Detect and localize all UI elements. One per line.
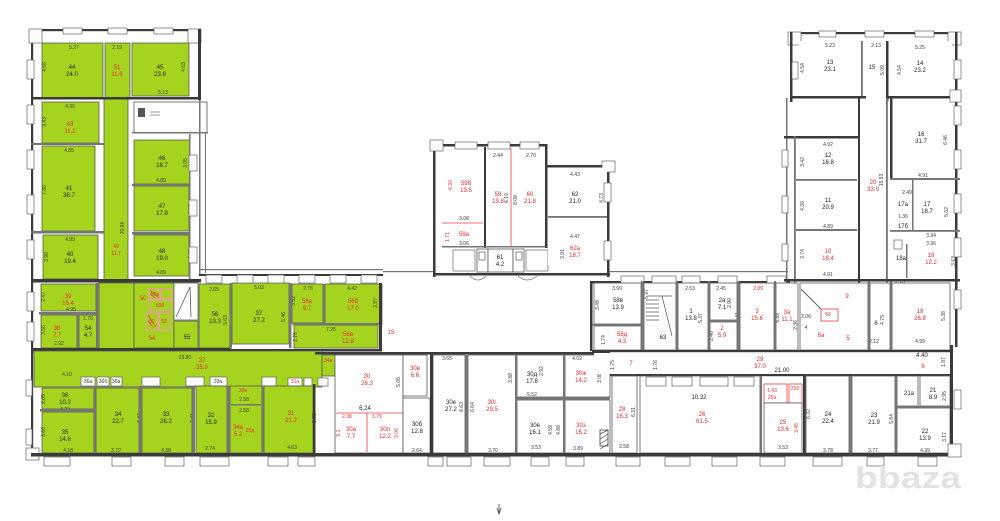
svg-text:20.88: 20.88 — [120, 222, 126, 235]
svg-text:2a: 2a — [719, 298, 726, 304]
svg-text:10: 10 — [825, 249, 832, 255]
svg-text:44: 44 — [69, 65, 76, 71]
svg-text:7.7: 7.7 — [53, 333, 62, 339]
svg-text:30e: 30e — [446, 400, 457, 406]
svg-text:18.7: 18.7 — [156, 163, 168, 169]
svg-text:7.1: 7.1 — [718, 305, 727, 311]
svg-text:9.7: 9.7 — [303, 306, 312, 312]
svg-text:4.89: 4.89 — [156, 178, 166, 184]
svg-text:5.02: 5.02 — [944, 207, 950, 217]
svg-text:6.10: 6.10 — [504, 193, 510, 203]
svg-text:25б: 25б — [791, 386, 800, 392]
svg-text:29.5: 29.5 — [486, 407, 498, 413]
svg-text:12.2: 12.2 — [379, 434, 391, 440]
svg-text:49: 49 — [113, 244, 119, 250]
svg-text:26.2: 26.2 — [160, 419, 172, 425]
svg-text:11.1: 11.1 — [781, 317, 793, 323]
svg-text:1.76: 1.76 — [653, 360, 659, 370]
svg-text:37: 37 — [256, 311, 263, 317]
svg-text:18.4: 18.4 — [822, 256, 834, 262]
svg-text:8.08: 8.08 — [513, 195, 519, 205]
svg-text:16: 16 — [918, 132, 925, 138]
svg-text:6.46: 6.46 — [943, 135, 949, 145]
svg-text:30и: 30и — [239, 388, 248, 394]
svg-text:19.4: 19.4 — [64, 259, 76, 265]
svg-text:2.58: 2.58 — [239, 408, 249, 414]
svg-text:3a: 3a — [784, 310, 791, 316]
svg-text:3.08: 3.08 — [597, 373, 603, 383]
svg-text:25д: 25д — [246, 428, 255, 434]
svg-text:55: 55 — [184, 335, 191, 341]
svg-text:15: 15 — [869, 65, 876, 71]
svg-text:31: 31 — [288, 411, 295, 417]
svg-text:22: 22 — [922, 429, 929, 435]
svg-text:30б: 30б — [412, 422, 423, 428]
svg-text:21.00: 21.00 — [774, 368, 790, 374]
svg-text:4.59: 4.59 — [548, 425, 554, 435]
svg-text:60: 60 — [527, 192, 534, 198]
svg-text:2.92: 2.92 — [54, 341, 64, 347]
svg-text:2.05: 2.05 — [41, 394, 47, 404]
svg-text:38: 38 — [54, 326, 61, 332]
svg-text:1.76: 1.76 — [83, 316, 93, 322]
svg-text:3.42: 3.42 — [800, 157, 806, 167]
svg-text:37.0: 37.0 — [754, 364, 766, 370]
svg-text:4.88: 4.88 — [556, 425, 562, 435]
svg-text:36: 36 — [62, 393, 69, 399]
svg-text:62: 62 — [572, 192, 579, 198]
svg-text:3.52: 3.52 — [291, 296, 297, 306]
svg-text:30в: 30в — [410, 366, 420, 372]
svg-text:18.7: 18.7 — [569, 253, 581, 259]
svg-text:56: 56 — [825, 312, 831, 318]
svg-text:4.02: 4.02 — [572, 356, 582, 362]
svg-text:5.38: 5.38 — [941, 311, 947, 321]
svg-text:2.36: 2.36 — [793, 320, 799, 330]
svg-text:39: 39 — [65, 294, 72, 300]
svg-text:56в: 56в — [343, 332, 353, 338]
svg-text:5.27: 5.27 — [69, 45, 79, 51]
svg-text:5.63: 5.63 — [223, 315, 229, 325]
svg-text:18: 18 — [928, 253, 935, 259]
svg-text:1.36: 1.36 — [898, 214, 908, 220]
svg-text:13.6: 13.6 — [777, 427, 789, 433]
svg-text:3.65: 3.65 — [442, 356, 452, 362]
svg-text:59: 59 — [495, 192, 502, 198]
svg-text:50a: 50a — [151, 292, 160, 298]
svg-text:36б: 36б — [99, 379, 108, 385]
svg-text:2.74: 2.74 — [205, 446, 215, 452]
svg-text:56б: 56б — [348, 299, 359, 305]
svg-text:19.5: 19.5 — [460, 188, 472, 194]
svg-text:50: 50 — [140, 296, 147, 302]
svg-text:4.47: 4.47 — [570, 234, 580, 240]
svg-text:4.30: 4.30 — [800, 201, 806, 211]
svg-text:2.45: 2.45 — [716, 286, 726, 292]
svg-text:3.34: 3.34 — [926, 233, 936, 239]
svg-text:3.89: 3.89 — [573, 446, 583, 452]
svg-text:51: 51 — [114, 65, 121, 71]
svg-text:3.46: 3.46 — [794, 423, 800, 433]
svg-text:36.7: 36.7 — [63, 193, 75, 199]
svg-text:6.6: 6.6 — [411, 373, 420, 379]
svg-text:5a: 5a — [818, 333, 825, 339]
svg-text:58в: 58в — [613, 298, 623, 304]
svg-text:2.13: 2.13 — [895, 279, 905, 285]
svg-text:48: 48 — [159, 249, 166, 255]
svg-text:53: 53 — [161, 319, 167, 325]
svg-text:2.90: 2.90 — [727, 298, 733, 308]
svg-text:3.05: 3.05 — [183, 158, 189, 168]
svg-text:3.17: 3.17 — [942, 432, 948, 442]
svg-text:43: 43 — [67, 122, 74, 128]
svg-text:15.6: 15.6 — [751, 316, 763, 322]
svg-text:15.93: 15.93 — [879, 174, 885, 187]
svg-text:7.80: 7.80 — [42, 185, 48, 195]
svg-text:2.12: 2.12 — [869, 339, 879, 345]
svg-text:24.0: 24.0 — [66, 72, 78, 78]
svg-text:16.2: 16.2 — [575, 430, 587, 436]
svg-text:59a: 59a — [459, 232, 470, 238]
svg-text:3.99: 3.99 — [612, 286, 622, 292]
svg-text:17б: 17б — [898, 224, 909, 230]
svg-text:11.6: 11.6 — [111, 72, 123, 78]
svg-text:4.99: 4.99 — [65, 104, 75, 110]
svg-text:30ж: 30ж — [576, 371, 587, 377]
svg-text:4.99: 4.99 — [915, 339, 925, 345]
svg-text:14: 14 — [917, 61, 924, 67]
svg-text:2.58: 2.58 — [239, 397, 249, 403]
svg-text:17a: 17a — [898, 202, 909, 208]
svg-text:22.7: 22.7 — [112, 419, 124, 425]
svg-text:28: 28 — [619, 407, 626, 413]
svg-text:2.78: 2.78 — [293, 332, 299, 342]
svg-text:30з: 30з — [576, 423, 586, 429]
svg-text:3.98: 3.98 — [44, 252, 50, 262]
svg-text:26.3: 26.3 — [361, 381, 373, 387]
svg-text:18.7: 18.7 — [921, 209, 933, 215]
svg-text:23: 23 — [871, 413, 878, 419]
svg-text:5.09: 5.09 — [880, 65, 886, 75]
svg-text:7.25: 7.25 — [326, 327, 336, 333]
svg-text:3.06: 3.06 — [394, 428, 400, 438]
svg-text:41: 41 — [66, 186, 73, 192]
svg-text:26: 26 — [699, 412, 706, 418]
svg-text:1.43: 1.43 — [767, 388, 777, 394]
svg-text:7.7: 7.7 — [347, 434, 356, 440]
svg-text:2.13: 2.13 — [871, 43, 881, 49]
svg-text:5.13: 5.13 — [158, 90, 168, 96]
svg-text:17.0: 17.0 — [347, 306, 359, 312]
svg-text:21.0: 21.0 — [569, 199, 581, 205]
svg-text:4.63: 4.63 — [287, 445, 297, 451]
svg-text:30е: 30е — [530, 423, 541, 429]
svg-text:27.2: 27.2 — [253, 318, 265, 324]
svg-text:35: 35 — [62, 430, 69, 436]
svg-text:4.85: 4.85 — [64, 148, 74, 154]
svg-text:58д: 58д — [617, 332, 628, 338]
svg-text:32: 32 — [208, 413, 215, 419]
svg-text:4: 4 — [805, 325, 808, 331]
svg-text:34в: 34в — [324, 358, 333, 364]
svg-text:1.74: 1.74 — [601, 335, 607, 345]
svg-text:31a: 31a — [291, 379, 300, 385]
svg-text:61: 61 — [497, 255, 504, 261]
svg-text:18a: 18a — [896, 256, 907, 262]
svg-text:3.97: 3.97 — [373, 298, 379, 308]
svg-text:5.03: 5.03 — [254, 285, 264, 291]
svg-text:5.25: 5.25 — [915, 45, 925, 51]
svg-text:11.1: 11.1 — [64, 129, 76, 135]
svg-text:3.74: 3.74 — [800, 249, 806, 259]
svg-text:5.1: 5.1 — [336, 429, 342, 436]
svg-text:33: 33 — [163, 412, 170, 418]
svg-text:5.46: 5.46 — [281, 312, 287, 322]
svg-text:4.99: 4.99 — [65, 237, 75, 243]
svg-text:56: 56 — [212, 312, 219, 318]
svg-text:26.8: 26.8 — [914, 316, 926, 322]
svg-text:21.8: 21.8 — [524, 199, 536, 205]
svg-text:4.92: 4.92 — [823, 142, 833, 148]
svg-text:5.37: 5.37 — [644, 289, 650, 299]
svg-text:2.53: 2.53 — [685, 286, 695, 292]
svg-text:1.71: 1.71 — [445, 232, 451, 242]
svg-text:34a: 34a — [233, 425, 244, 431]
svg-text:4.63: 4.63 — [181, 62, 187, 72]
svg-text:5.37: 5.37 — [698, 313, 704, 323]
svg-text:3.91: 3.91 — [560, 249, 566, 259]
svg-text:35.0: 35.0 — [196, 365, 208, 371]
svg-text:3.63: 3.63 — [951, 256, 957, 266]
svg-text:23.1: 23.1 — [824, 67, 836, 73]
svg-text:14.2: 14.2 — [575, 378, 587, 384]
svg-text:2.47: 2.47 — [41, 292, 47, 302]
svg-text:4.10: 4.10 — [62, 372, 72, 378]
svg-text:52: 52 — [149, 319, 155, 325]
svg-text:23.2: 23.2 — [914, 68, 926, 74]
svg-text:6.31: 6.31 — [631, 407, 637, 417]
svg-text:20.9: 20.9 — [822, 205, 834, 211]
svg-text:3.49: 3.49 — [595, 300, 601, 310]
svg-text:3.88: 3.88 — [508, 373, 514, 383]
svg-text:10.2: 10.2 — [59, 400, 71, 406]
svg-text:1.75: 1.75 — [610, 360, 616, 370]
svg-text:30д: 30д — [527, 372, 538, 378]
svg-text:13.3: 13.3 — [209, 319, 221, 325]
svg-text:13.9: 13.9 — [612, 305, 624, 311]
svg-text:5.84: 5.84 — [889, 414, 895, 424]
svg-text:14.6: 14.6 — [59, 437, 71, 443]
svg-text:45: 45 — [157, 65, 164, 71]
svg-text:4.66: 4.66 — [42, 62, 48, 72]
svg-text:47: 47 — [159, 204, 166, 210]
svg-text:16.3: 16.3 — [616, 414, 628, 420]
svg-text:2.65: 2.65 — [209, 287, 219, 293]
svg-text:12.2: 12.2 — [925, 260, 937, 266]
svg-text:19.0: 19.0 — [156, 256, 168, 262]
svg-text:2.38: 2.38 — [342, 414, 352, 420]
svg-text:12.8: 12.8 — [342, 339, 354, 345]
svg-text:33a: 33a — [214, 379, 223, 385]
svg-text:12: 12 — [825, 153, 832, 159]
svg-text:27.2: 27.2 — [445, 407, 457, 413]
svg-text:17.8: 17.8 — [526, 379, 538, 385]
svg-text:4.54: 4.54 — [897, 65, 903, 75]
svg-text:3.53: 3.53 — [531, 445, 541, 451]
svg-text:20: 20 — [870, 180, 877, 186]
svg-text:4.91: 4.91 — [823, 272, 833, 278]
svg-text:36в: 36в — [112, 379, 121, 385]
svg-text:22.4: 22.4 — [822, 419, 834, 425]
svg-text:11: 11 — [825, 198, 832, 204]
svg-text:3.56: 3.56 — [41, 325, 47, 335]
svg-text:21.9: 21.9 — [868, 420, 880, 426]
svg-text:2.49: 2.49 — [902, 190, 912, 196]
svg-text:30a: 30a — [346, 427, 357, 433]
svg-text:24: 24 — [825, 412, 832, 418]
svg-text:3.60: 3.60 — [41, 427, 47, 437]
svg-text:12.8: 12.8 — [411, 429, 423, 435]
svg-text:50б: 50б — [156, 303, 165, 309]
svg-text:5.2: 5.2 — [234, 432, 243, 438]
svg-text:15: 15 — [388, 330, 395, 336]
svg-text:4.3: 4.3 — [618, 339, 627, 345]
svg-text:56a: 56a — [302, 299, 313, 305]
svg-text:2.44: 2.44 — [493, 153, 503, 159]
svg-text:13.8: 13.8 — [685, 316, 697, 322]
svg-text:15.9: 15.9 — [205, 420, 217, 426]
svg-text:6.24: 6.24 — [359, 406, 371, 412]
svg-text:4.40: 4.40 — [916, 353, 928, 359]
svg-text:13: 13 — [827, 60, 834, 66]
svg-text:21: 21 — [930, 388, 937, 394]
svg-text:34: 34 — [115, 412, 122, 418]
svg-text:4.42: 4.42 — [347, 286, 357, 292]
svg-text:36a: 36a — [84, 379, 93, 385]
svg-text:17: 17 — [924, 202, 931, 208]
svg-text:40: 40 — [67, 252, 74, 258]
svg-text:4.89: 4.89 — [156, 270, 166, 276]
svg-text:4.43: 4.43 — [570, 172, 580, 178]
svg-text:33.9: 33.9 — [867, 187, 879, 193]
svg-text:6.64: 6.64 — [470, 402, 476, 412]
svg-text:8.9: 8.9 — [929, 395, 938, 401]
svg-text:25a: 25a — [768, 395, 777, 401]
svg-text:54: 54 — [85, 326, 92, 332]
svg-text:2.89: 2.89 — [753, 286, 763, 292]
svg-text:61.5: 61.5 — [696, 419, 708, 425]
svg-text:1.87: 1.87 — [941, 357, 947, 367]
svg-text:4.2: 4.2 — [496, 262, 505, 268]
svg-text:62a: 62a — [570, 246, 581, 252]
svg-text:3.08: 3.08 — [459, 216, 469, 222]
svg-text:2.19: 2.19 — [112, 45, 122, 51]
svg-text:2.06: 2.06 — [801, 314, 811, 320]
svg-text:2.58: 2.58 — [619, 444, 629, 450]
svg-text:6.33: 6.33 — [448, 180, 454, 190]
svg-text:4.75: 4.75 — [880, 315, 886, 325]
svg-text:37: 37 — [199, 358, 206, 364]
svg-text:bbaza: bbaza — [855, 460, 962, 495]
svg-text:5.05: 5.05 — [396, 377, 402, 387]
svg-text:16.8: 16.8 — [822, 160, 834, 166]
svg-text:17.8: 17.8 — [156, 211, 168, 217]
svg-text:5.23: 5.23 — [825, 43, 835, 49]
svg-text:29: 29 — [757, 357, 764, 363]
svg-text:5.9: 5.9 — [718, 333, 727, 339]
svg-text:2.92: 2.92 — [539, 366, 545, 376]
svg-text:2.70: 2.70 — [526, 153, 536, 159]
svg-text:30: 30 — [364, 374, 371, 380]
svg-text:19: 19 — [917, 309, 924, 315]
svg-text:3.43: 3.43 — [42, 117, 48, 127]
svg-text:4.7: 4.7 — [84, 333, 93, 339]
svg-text:59б: 59б — [461, 181, 472, 187]
svg-text:6.63: 6.63 — [459, 402, 465, 412]
svg-text:4.54: 4.54 — [800, 63, 806, 73]
svg-text:2.76: 2.76 — [303, 286, 313, 292]
svg-text:54: 54 — [149, 336, 156, 342]
svg-text:23.80: 23.80 — [179, 355, 192, 361]
svg-text:3.79: 3.79 — [372, 414, 382, 420]
svg-text:6.32: 6.32 — [806, 409, 812, 419]
svg-text:21a: 21a — [904, 391, 915, 397]
svg-text:19.8: 19.8 — [492, 199, 504, 205]
svg-text:10.32: 10.32 — [691, 395, 707, 401]
svg-text:16.1: 16.1 — [529, 430, 541, 436]
svg-text:63: 63 — [660, 335, 667, 341]
svg-text:11.7: 11.7 — [111, 251, 121, 257]
svg-text:21.2: 21.2 — [285, 418, 297, 424]
svg-text:31.7: 31.7 — [915, 139, 927, 145]
svg-text:30п: 30п — [380, 427, 390, 433]
svg-text:13.9: 13.9 — [919, 436, 931, 442]
svg-text:2.95: 2.95 — [942, 391, 948, 401]
svg-text:46: 46 — [159, 156, 166, 162]
svg-text:30г: 30г — [488, 400, 498, 406]
svg-text:3.53: 3.53 — [778, 445, 788, 451]
svg-text:23.8: 23.8 — [154, 72, 166, 78]
svg-text:25: 25 — [780, 420, 787, 426]
